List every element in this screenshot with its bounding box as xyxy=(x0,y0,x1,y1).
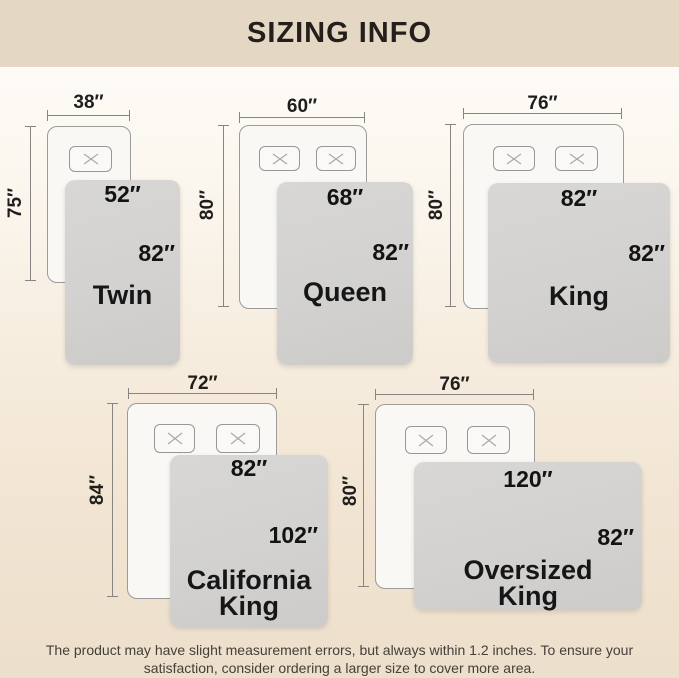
calking-name-label: California King xyxy=(170,567,328,619)
pillow-x-icon xyxy=(504,152,524,166)
pillow xyxy=(216,424,260,453)
twin-bed-width-label: 38″ xyxy=(47,92,130,114)
queen-blanket: 68″ 82″ Queen xyxy=(277,182,413,365)
pillow-x-icon xyxy=(165,431,185,446)
pillow-x-icon xyxy=(416,433,436,448)
calking-bed-length-label: 84″ xyxy=(87,475,109,505)
queen-bed-width-label: 60″ xyxy=(239,96,365,118)
pillow xyxy=(555,146,598,171)
oversized-blanket-length-label: 82″ xyxy=(597,524,634,551)
king-width-dimension-line xyxy=(463,113,622,114)
footer-note: The product may have slight measurement … xyxy=(0,641,679,677)
pillow xyxy=(154,424,195,453)
pillow xyxy=(467,426,510,454)
king-length-dimension-line xyxy=(450,124,451,307)
queen-length-dimension-line xyxy=(223,125,224,307)
king-name-label: King xyxy=(488,283,670,309)
oversized-width-dimension-line xyxy=(375,394,534,395)
oversized-length-dimension-line xyxy=(363,404,364,587)
queen-blanket-length-label: 82″ xyxy=(372,239,409,266)
twin-bed-length-label: 75″ xyxy=(5,188,27,218)
queen-width-dimension-line xyxy=(239,117,365,118)
calking-blanket-width-label: 82″ xyxy=(170,455,328,482)
pillow xyxy=(316,146,356,171)
pillow-x-icon xyxy=(81,152,101,166)
pillow xyxy=(259,146,300,171)
twin-length-dimension-line xyxy=(30,126,31,281)
footer-note-line1: The product may have slight measurement … xyxy=(0,641,679,659)
twin-name-label: Twin xyxy=(65,282,180,308)
oversized-bed-width-label: 76″ xyxy=(375,374,534,396)
queen-blanket-width-label: 68″ xyxy=(277,184,413,211)
oversized-bed-length-label: 80″ xyxy=(340,476,362,506)
king-bed-length-label: 80″ xyxy=(426,190,448,220)
queen-bed-length-label: 80″ xyxy=(197,190,219,220)
twin-blanket-width-label: 52″ xyxy=(65,181,180,208)
pillow-x-icon xyxy=(270,152,290,166)
pillow-x-icon xyxy=(228,431,248,446)
header-band: SIZING INFO xyxy=(0,0,679,67)
oversized-name-label: Oversized King xyxy=(414,557,642,609)
queen-name-label: Queen xyxy=(277,279,413,305)
king-blanket: 82″ 82″ King xyxy=(488,183,670,363)
pillow-x-icon xyxy=(567,152,587,166)
calking-length-dimension-line xyxy=(112,403,113,597)
oversized-blanket: 120″ 82″ Oversized King xyxy=(414,462,642,610)
pillow xyxy=(493,146,535,171)
calking-blanket: 82″ 102″ California King xyxy=(170,455,328,627)
king-blanket-width-label: 82″ xyxy=(488,185,670,212)
twin-blanket-length-label: 82″ xyxy=(138,240,175,267)
calking-blanket-length-label: 102″ xyxy=(269,522,318,549)
pillow-x-icon xyxy=(479,433,499,448)
twin-blanket: 52″ 82″ Twin xyxy=(65,180,180,365)
pillow-x-icon xyxy=(326,152,346,166)
sizing-info-page: SIZING INFO 38″ 75″ 52″ 82″ Twin 60″ 80″ xyxy=(0,0,679,678)
king-bed-width-label: 76″ xyxy=(463,93,622,115)
king-blanket-length-label: 82″ xyxy=(628,240,665,267)
page-title: SIZING INFO xyxy=(247,17,432,50)
calking-bed-width-label: 72″ xyxy=(128,373,277,395)
footer-note-line2: satisfaction, consider ordering a larger… xyxy=(0,659,679,677)
oversized-blanket-width-label: 120″ xyxy=(414,466,642,493)
pillow xyxy=(69,146,112,172)
calking-width-dimension-line xyxy=(128,393,277,394)
pillow xyxy=(405,426,447,454)
twin-width-dimension-line xyxy=(47,115,130,116)
